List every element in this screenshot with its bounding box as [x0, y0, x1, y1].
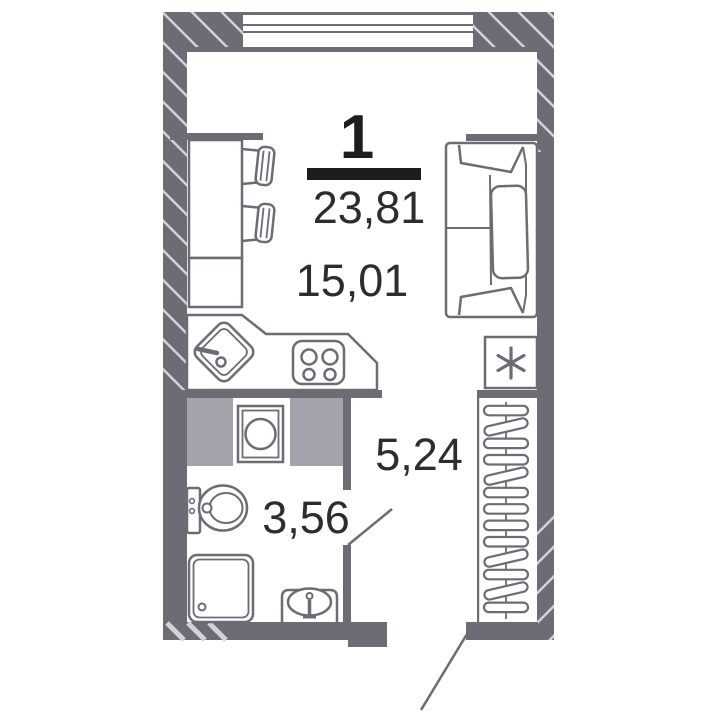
- sofa-back-cushion: [491, 186, 528, 279]
- wall-top-right-block: [473, 12, 554, 50]
- fridge: [485, 337, 537, 388]
- shower-tray-icon: [189, 555, 253, 622]
- floor-plan: 1 23,81 15,01 5,24 3,56: [0, 0, 720, 720]
- wardrobe-left-edge: [477, 398, 479, 622]
- window-glazing-line-1: [243, 24, 473, 26]
- kitchen-tall-cabinet: [189, 258, 242, 307]
- dining-area: [189, 140, 275, 307]
- wall-ledge-right: [466, 134, 537, 141]
- kitchen: [187, 315, 377, 390]
- toilet-icon: [187, 486, 247, 534]
- stove-icon: [293, 341, 344, 384]
- bathroom-door-swing: [348, 509, 392, 545]
- hallway-area-label: 5,24: [375, 429, 463, 480]
- window-inner-wall-edge: [187, 47, 537, 52]
- wardrobe: [477, 398, 529, 622]
- washing-machine-icon: [238, 406, 283, 462]
- partition-bathroom-lower: [343, 545, 351, 622]
- bath-cabinet-left: [187, 398, 233, 466]
- bath-cabinet-right: [290, 398, 343, 466]
- living-room-area-label: 15,01: [296, 255, 409, 306]
- wall-bottom-step: [348, 640, 387, 647]
- sink-drain: [217, 358, 226, 367]
- wall-right-upper: [537, 50, 554, 152]
- partition-bathroom-upper: [343, 390, 351, 490]
- partition-wardrobe-top: [477, 390, 537, 398]
- bathroom-sink-icon: [282, 589, 337, 623]
- entrance-door-swing: [421, 634, 467, 710]
- bathroom-area-label: 3,56: [262, 492, 350, 543]
- unit-number: 1: [340, 103, 374, 172]
- wall-bottom-wardrobe: [466, 622, 538, 640]
- wall-right-middle: [537, 152, 554, 510]
- total-area-label: 23,81: [313, 182, 426, 233]
- chair: [242, 146, 275, 185]
- sofa: [446, 143, 537, 317]
- labels: 1 23,81 15,01 5,24 3,56: [262, 103, 463, 543]
- floor-plan-canvas: 1 23,81 15,01 5,24 3,56: [0, 0, 720, 720]
- wall-right-lower: [537, 510, 554, 640]
- unit-number-underline: [307, 168, 421, 180]
- table: [189, 140, 242, 258]
- window-outer-line: [243, 12, 473, 15]
- wall-top-left-block: [163, 12, 243, 50]
- chair: [242, 203, 275, 242]
- wall-left-upper: [163, 50, 187, 390]
- window-glazing-line-2: [243, 31, 473, 33]
- wall-left-lower: [163, 390, 187, 640]
